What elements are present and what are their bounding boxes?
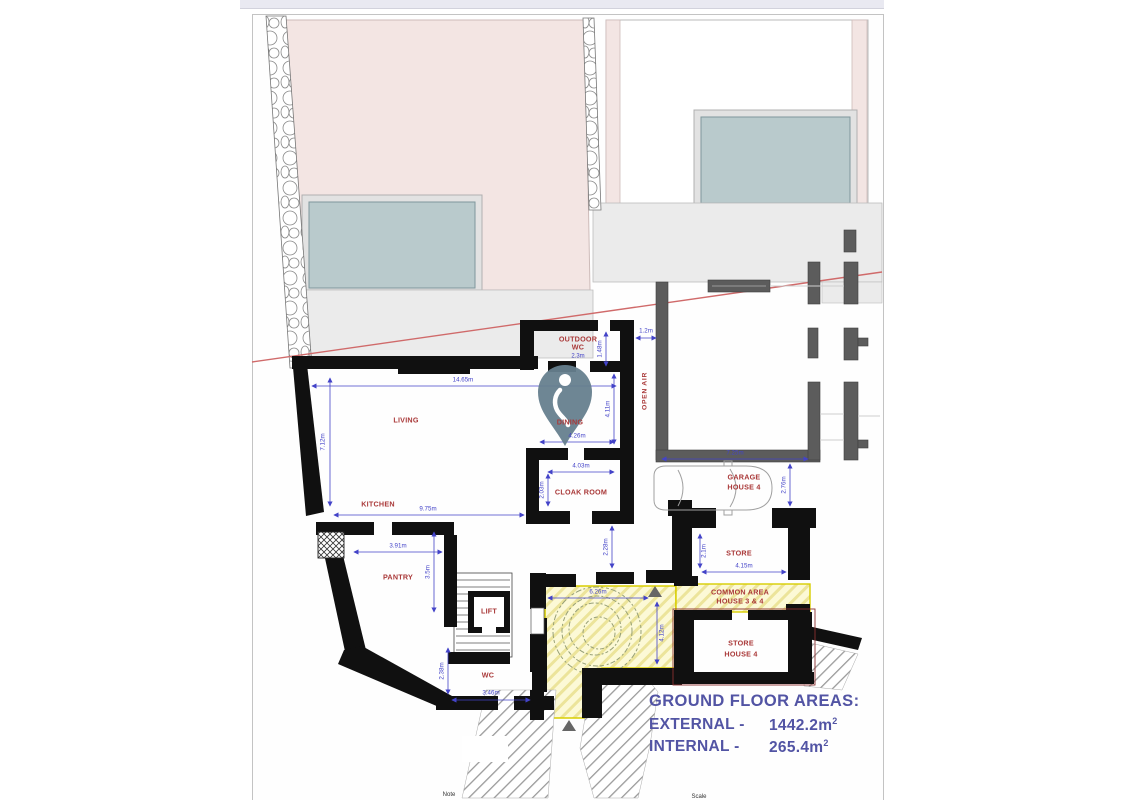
room-label-outdoor-wc: OUTDOOR [559,336,597,344]
room-label-pantry: PANTRY [383,574,413,582]
dimension-label: 1.48m [597,340,604,357]
room-label-garage: HOUSE 4 [727,484,760,492]
footer-scale-label: Scale [691,793,706,800]
areas-panel: GROUND FLOOR AREAS: EXTERNAL - 1442.2m2 … [649,692,859,760]
dimension-label: 2.28m [603,538,610,555]
dimension-label: 4.12m [659,624,666,641]
room-label-kitchen: KITCHEN [361,501,395,509]
dimension-label: 14.65m [453,377,474,384]
room-label-common-area: COMMON AREA [711,589,769,597]
dimension-label: 1.2m [639,328,653,335]
floorplan-drawing [0,0,1132,800]
dimension-label: 4.26m [568,433,585,440]
dimension-label: 3.91m [389,543,406,550]
areas-title: GROUND FLOOR AREAS: [649,692,859,711]
areas-label: EXTERNAL - [649,716,769,735]
areas-value: 1442.2m2 [769,716,859,735]
room-label-outdoor-wc: WC [572,344,584,352]
dimension-label: 4.03m [572,463,589,470]
room-label-common-area: HOUSE 3 & 4 [716,598,763,606]
room-label-open-air: OPEN AIR [641,372,649,410]
dimension-label: 2.38m [439,662,446,679]
chimney-block [318,532,344,558]
glazing-b [701,117,850,203]
room-label-living: LIVING [393,417,418,425]
dimension-label: 7.25m [726,450,743,457]
room-label-wc: WC [482,672,494,680]
areas-row-internal: INTERNAL - 265.4m2 [649,738,859,757]
building-b [606,20,868,206]
areas-row-external: EXTERNAL - 1442.2m2 [649,716,859,735]
dimension-label: 2.1m [701,544,708,558]
building-a [282,20,590,290]
dimension-label: 9.75m [419,506,436,513]
areas-label: INTERNAL - [649,738,769,757]
dimension-label: 4.11m [605,401,612,418]
dimension-label: 7.12m [320,433,327,450]
glazing-a [309,202,475,288]
room-label-store-house4: STORE [728,640,754,648]
dimension-label: 3.46m [482,690,499,697]
room-label-store: STORE [726,550,752,558]
dimension-label: 2.3m [571,353,584,360]
room-label-dining: DINING [557,419,584,427]
dimension-label: 2.03m [539,481,546,498]
areas-value: 265.4m2 [769,738,859,757]
dimension-label: 6.26m [589,589,606,596]
window-symbol [531,608,544,634]
dimension-label: 2.76m [781,476,788,493]
room-label-garage: GARAGE [728,474,761,482]
dimension-label: 3.5m [425,565,432,579]
footer-note-label: Note [443,791,456,798]
room-label-lift: LIFT [481,608,497,616]
dimension-label: 4.15m [735,563,752,570]
floorplan-page: 14.65m 7.12m 9.75m 4.26m 4.11m 1.48m 1.2… [0,0,1132,800]
room-label-cloak-room: CLOAK ROOM [555,489,607,497]
room-label-store-house4: HOUSE 4 [724,651,757,659]
